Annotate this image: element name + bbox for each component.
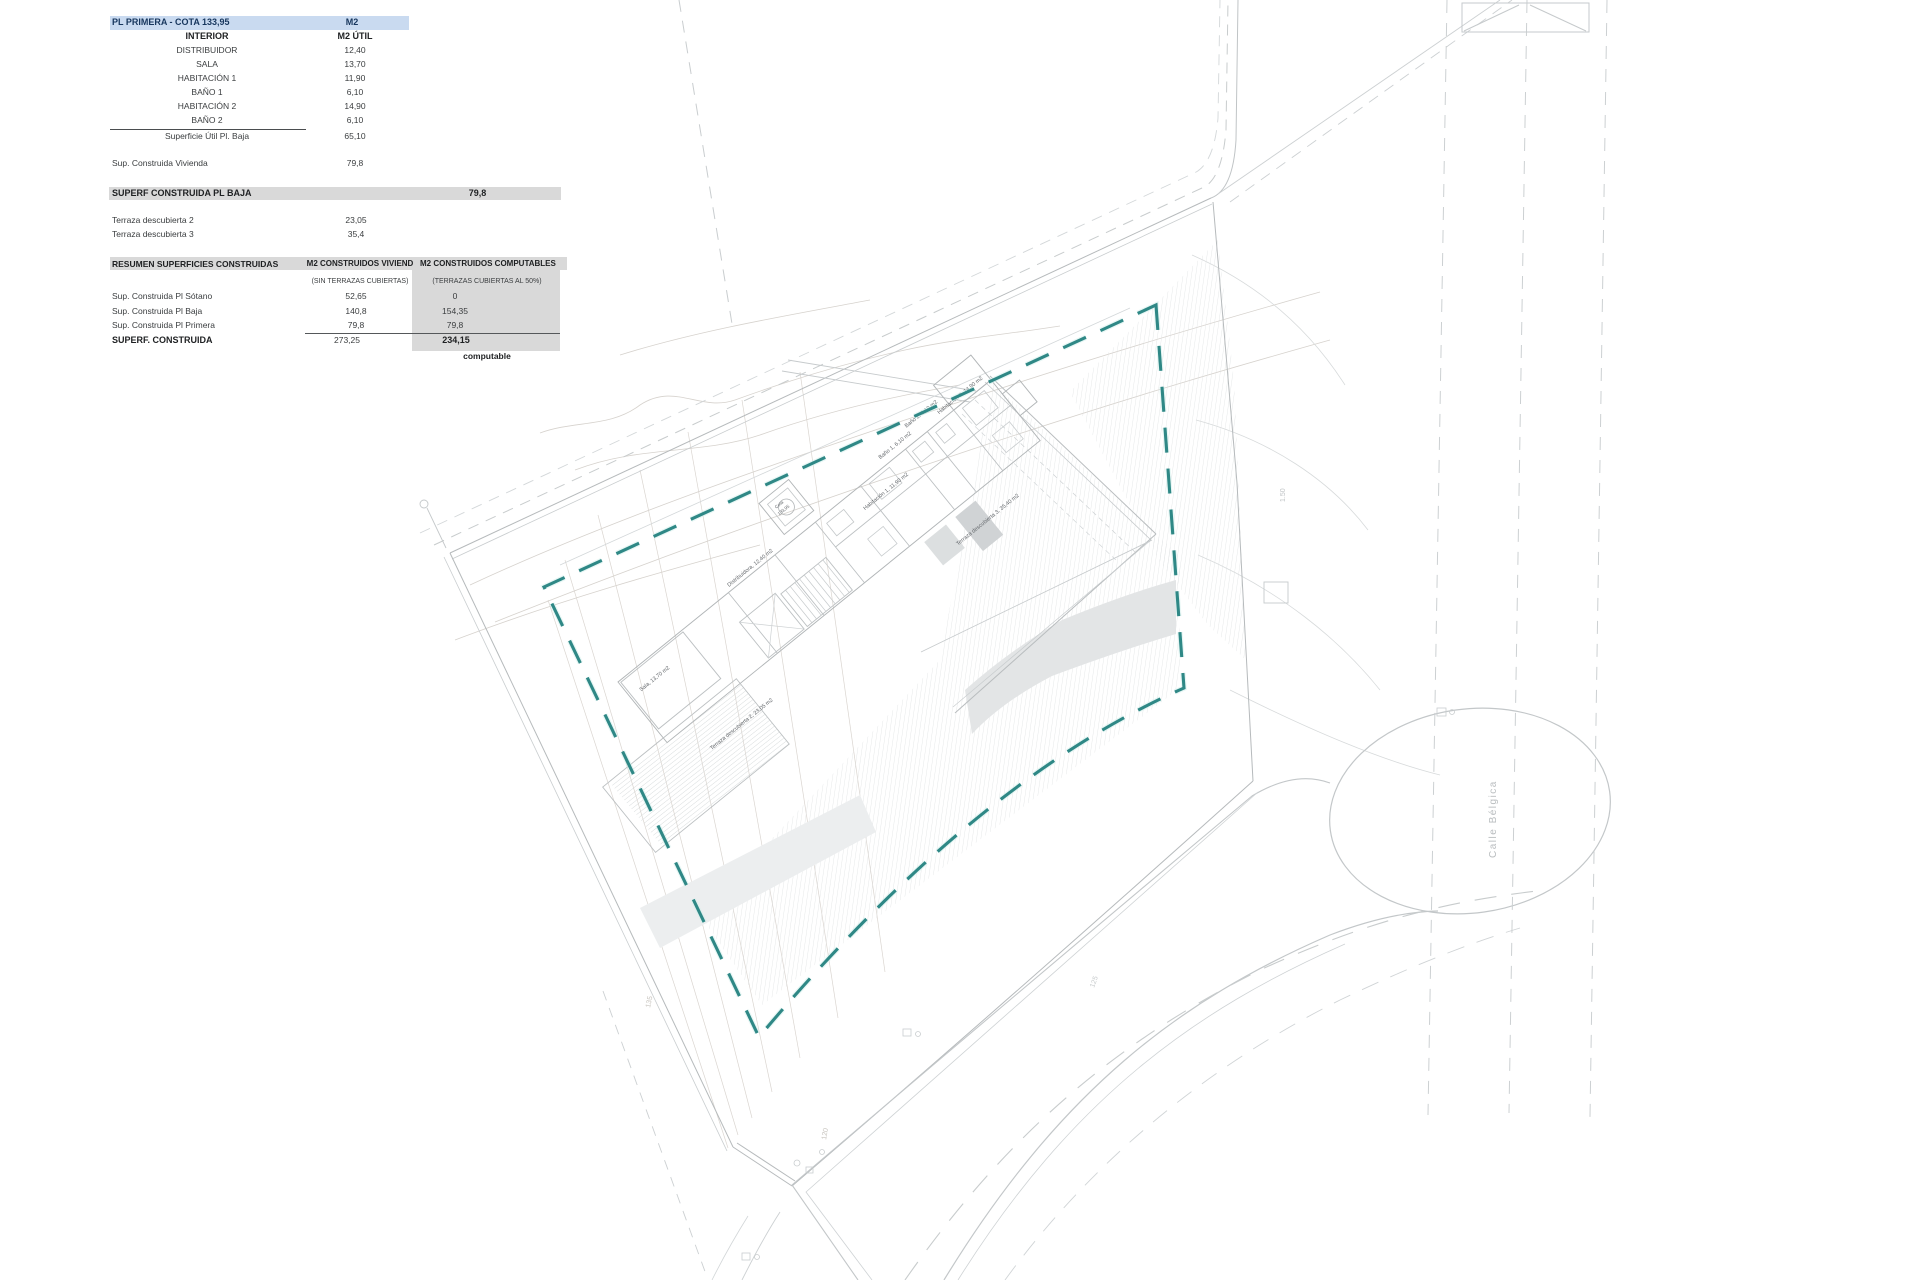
svg-text:125: 125 xyxy=(1089,975,1100,988)
svg-text:1.50: 1.50 xyxy=(1280,488,1287,502)
svg-text:Sala, 13,70 m2: Sala, 13,70 m2 xyxy=(639,665,672,693)
svg-text:Calle Bélgica: Calle Bélgica xyxy=(1488,780,1499,858)
svg-text:Distribuidora, 12,40 m2: Distribuidora, 12,40 m2 xyxy=(726,548,774,588)
svg-text:120: 120 xyxy=(821,1128,830,1141)
svg-text:Baño 1, 6,10 m2: Baño 1, 6,10 m2 xyxy=(878,431,913,461)
svg-text:135: 135 xyxy=(645,995,654,1008)
